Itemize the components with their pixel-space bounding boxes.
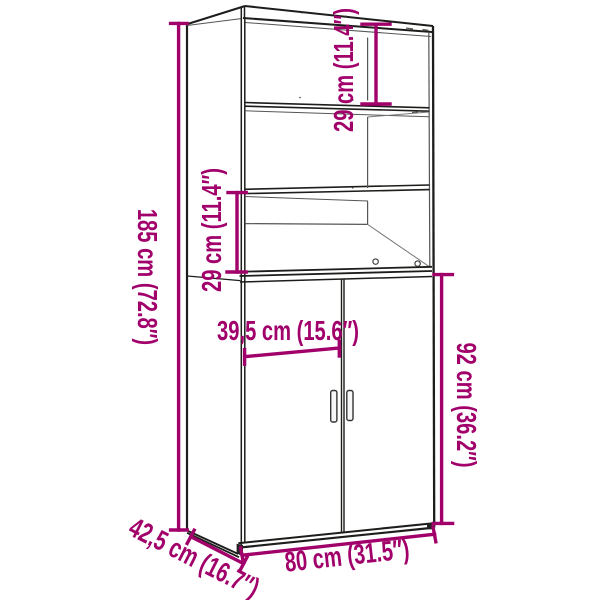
dimension-label-total-height: 185 cm (72.8″) xyxy=(133,209,161,345)
left-door-handle xyxy=(331,391,337,423)
shelf-pin-hole xyxy=(373,259,378,264)
dimension-lines xyxy=(171,23,453,570)
cabinet-line-drawing xyxy=(0,0,600,600)
dimension-line-total-height xyxy=(171,23,188,530)
dimension-line-door-height xyxy=(433,275,452,524)
dimension-label-door-width: 39,5 cm (15.6″) xyxy=(217,317,359,345)
right-door-handle xyxy=(347,391,353,421)
dimension-label-top-compartment: 29 cm (11.4″) xyxy=(330,8,358,132)
dimension-line-lower-compartment xyxy=(227,193,246,272)
dimension-label-door-height: 92 cm (36.2″) xyxy=(452,342,480,467)
dimension-label-lower-compartment: 29 cm (11.4″) xyxy=(198,168,226,292)
shelf-pin-hole xyxy=(415,261,420,266)
dimension-diagram: 185 cm (72.8″) 29 cm (11.4″) 29 cm (11.4… xyxy=(0,0,600,600)
dimension-line-top-compartment xyxy=(362,24,390,104)
